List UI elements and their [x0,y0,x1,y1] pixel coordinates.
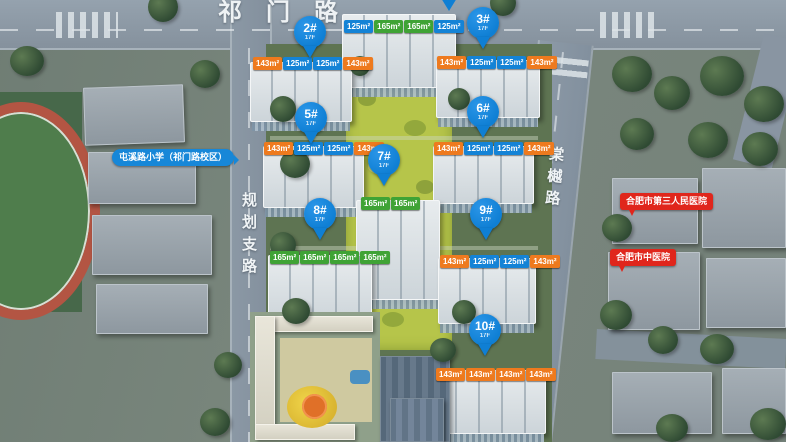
area-tag: 143m² [496,368,525,381]
pin-head: 9#17F [470,198,502,230]
garden-planting [404,120,426,136]
pin-head: 6#17F [467,96,499,128]
area-tag: 125m² [464,142,493,155]
tree [742,132,778,166]
area-tag: 165m² [361,197,390,210]
area-tag: 125m² [434,20,463,33]
tree [602,214,632,242]
pin-building-2[interactable]: 2#17F [293,16,327,58]
area-tag: 143m² [436,368,465,381]
tree [600,300,632,330]
area-tag: 143m² [437,56,466,69]
tree [10,46,44,76]
pin-number: 7# [377,150,390,163]
top-road-name: 祁门路 [218,0,362,27]
pin-building-7[interactable]: 7#17F [367,144,401,186]
playground-orange [302,394,327,419]
pin-tail [478,344,492,356]
tagrow-building-8: 165m² 165m² 165m² 165m² [270,251,390,264]
area-tag: 143m² [434,142,463,155]
pin-building-6[interactable]: 6#17F [466,96,500,138]
tree [430,338,456,362]
crosswalk [56,12,118,38]
tagrow-building-7: 165m² 165m² [361,197,420,210]
tagrow-building-1: 125m² 165m² 165m² 125m² [344,20,464,33]
area-tag: 143m² [440,255,469,268]
tree [744,86,784,122]
tagrow-building-6: 143m² 125m² 125m² 143m² [434,142,554,155]
area-tag: 143m² [466,368,495,381]
school-building [92,215,212,275]
glass-building [390,398,444,442]
pin-head: 2#17F [294,16,326,48]
pin-floors: 17F [306,121,316,128]
tree [270,96,296,122]
pin-tail [313,228,327,240]
area-tag: 125m² [500,255,529,268]
pin-building-8[interactable]: 8#17F [303,198,337,240]
pin-building-10[interactable]: 10#17F [468,314,502,356]
tree [700,334,734,364]
tree [190,60,220,88]
school-label[interactable]: 屯溪路小学（祁门路校区） [112,149,234,166]
pin-floors: 17F [481,217,491,224]
tagrow-building-9: 143m² 125m² 125m² 143m² [440,255,560,268]
bottom-right-road [595,329,786,369]
area-tag: 125m² [313,57,342,70]
pin-1-partial[interactable] [441,0,457,11]
area-tag: 165m² [374,20,403,33]
area-tag: 125m² [324,142,353,155]
pin-number: 8# [313,204,326,217]
area-tag: 165m² [300,251,329,264]
tree [200,408,230,436]
pin-head: 7#17F [368,144,400,176]
pin-tail [304,132,318,144]
pin-head: 3#17F [467,7,499,39]
pin-number: 9# [479,204,492,217]
tree [656,414,688,442]
pin-floors: 17F [478,26,488,33]
pin-head: 5#17F [295,102,327,134]
tree [620,118,654,150]
area-tag: 165m² [270,251,299,264]
area-tag: 125m² [283,57,312,70]
pin-tail [476,126,490,138]
area-tag: 165m² [391,197,420,210]
left-road-name: 规划支路 [238,192,259,280]
pin-head: 8#17F [304,198,336,230]
area-tag: 143m² [253,57,282,70]
tree [648,326,678,354]
area-tag: 165m² [360,251,389,264]
pin-floors: 17F [315,217,325,224]
pin-tail [377,174,391,186]
hospital-label-2[interactable]: 合肥市中医院 [610,249,676,266]
tree [700,56,744,96]
tagrow-building-10: 143m² 143m² 143m² 143m² [436,368,556,381]
tree [688,122,728,158]
garden-planting [416,180,434,194]
kindergarten-building [255,316,275,436]
garden-planting [382,312,404,327]
pin-floors: 17F [480,333,490,340]
area-tag: 143m² [526,368,555,381]
hospital-label-1[interactable]: 合肥市第三人民医院 [620,193,713,210]
aerial-site-plan: 祁门路 规划支路 棠樾路 125m² 165m² 165m² 125m² 143… [0,0,786,442]
school-building [96,284,208,334]
tree [214,352,242,378]
pin-number: 10# [475,320,495,333]
pin-floors: 17F [379,163,389,170]
area-tag: 125m² [467,56,496,69]
tagrow-building-3: 143m² 125m² 125m² 143m² [437,56,557,69]
tree [612,56,652,92]
pin-number: 2# [303,22,316,35]
tree [282,298,310,324]
area-tag: 165m² [330,251,359,264]
pin-head: 10#17F [469,314,501,346]
area-tag: 143m² [524,142,553,155]
school-building [83,84,185,145]
small-pool [350,370,370,384]
city-building [706,258,786,328]
crosswalk [600,12,660,38]
area-tag: 125m² [494,142,523,155]
pin-number: 5# [304,108,317,121]
area-tag: 143m² [343,57,372,70]
pin-tail [303,46,317,58]
tagrow-building-2: 143m² 125m² 125m² 143m² [253,57,373,70]
pin-floors: 17F [305,35,315,42]
pin-floors: 17F [478,115,488,122]
area-tag: 165m² [404,20,433,33]
tree [750,408,786,440]
tree [654,76,690,110]
pin-tail [476,37,490,49]
area-tag: 143m² [264,142,293,155]
area-tag: 125m² [470,255,499,268]
city-building [702,168,786,248]
pin-building-5[interactable]: 5#17F [294,102,328,144]
area-tag: 125m² [344,20,373,33]
pin-building-9[interactable]: 9#17F [469,198,503,240]
pin-tail [479,228,493,240]
area-tag: 125m² [497,56,526,69]
pin-building-3[interactable]: 3#17F [466,7,500,49]
area-tag: 143m² [527,56,556,69]
pin-number: 6# [476,102,489,115]
area-tag: 143m² [530,255,559,268]
pin-number: 3# [476,13,489,26]
